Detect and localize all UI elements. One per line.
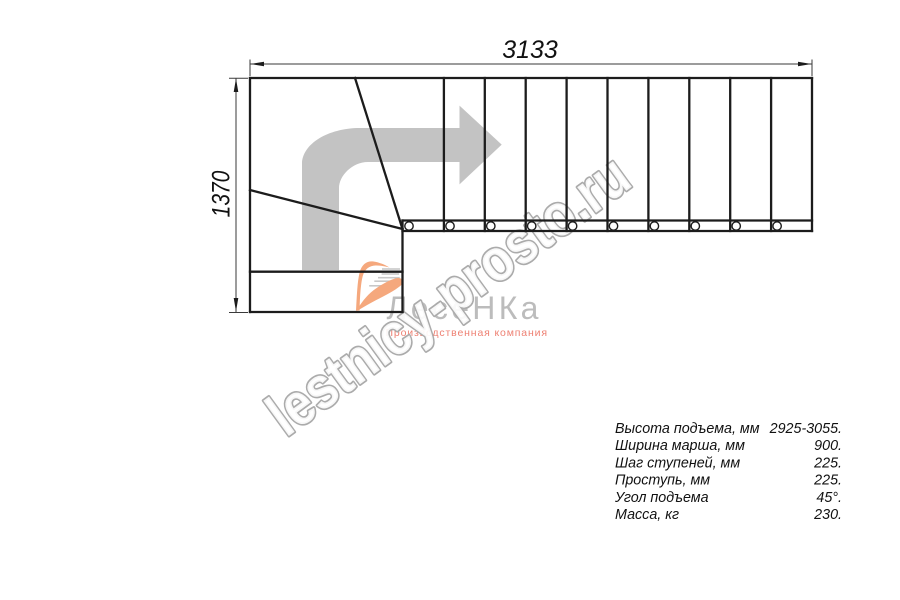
svg-text:Шаг ступеней, мм: Шаг ступеней, мм [615,455,740,471]
svg-text:225.: 225. [813,473,842,489]
svg-text:Проступь, мм: Проступь, мм [615,473,710,489]
svg-text:900.: 900. [814,438,842,454]
svg-text:Масса, кг: Масса, кг [615,507,679,523]
svg-text:45°.: 45°. [816,490,842,506]
svg-text:1370: 1370 [207,171,235,218]
svg-text:225.: 225. [813,455,842,471]
svg-text:Высота подъема, мм: Высота подъема, мм [615,421,760,437]
svg-text:2925-3055.: 2925-3055. [769,421,842,437]
svg-text:230.: 230. [813,507,842,523]
svg-text:Угол подъема: Угол подъема [614,490,709,506]
svg-text:3133: 3133 [502,36,558,64]
svg-text:Ширина марша, мм: Ширина марша, мм [615,438,745,454]
